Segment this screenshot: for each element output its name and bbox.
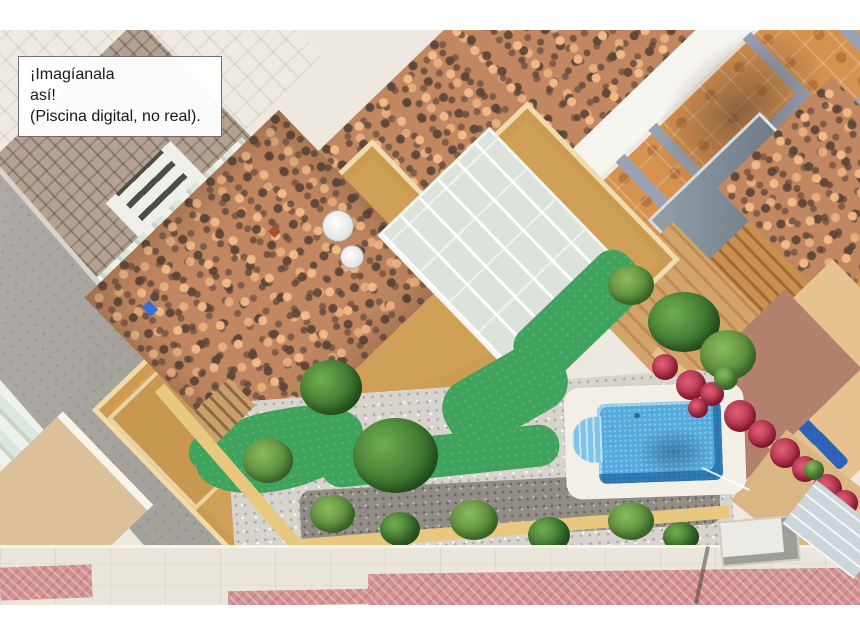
- caption-line-1: ¡Imagíanala: [30, 64, 210, 85]
- palm-shadow-on-pool: [638, 428, 710, 476]
- garden-shrub: [243, 438, 293, 483]
- satellite-dish: [322, 210, 354, 242]
- bougainvillea-cluster: [688, 398, 708, 418]
- screenshot: ¡Imagíanala así! (Piscina digital, no re…: [0, 0, 860, 640]
- garden-tree: [353, 418, 438, 493]
- garden-shrub: [608, 265, 654, 305]
- border-shrub: [450, 500, 498, 540]
- pink-paver-strip: [228, 589, 373, 605]
- caption-overlay: ¡Imagíanala así! (Piscina digital, no re…: [18, 56, 222, 137]
- bougainvillea-cluster: [652, 354, 678, 380]
- border-shrub: [608, 502, 654, 540]
- fence-shrub: [804, 460, 824, 480]
- caption-line-3: (Piscina digital, no real).: [30, 106, 210, 127]
- fence-shrub: [714, 366, 738, 390]
- garden-tree: [300, 360, 362, 415]
- pink-paver-block-left: [0, 564, 93, 600]
- satellite-dish: [340, 245, 364, 269]
- border-shrub: [310, 495, 355, 533]
- border-shrub: [380, 512, 420, 546]
- caption-line-2: así!: [30, 85, 210, 106]
- pool-drain-dot: [634, 413, 640, 418]
